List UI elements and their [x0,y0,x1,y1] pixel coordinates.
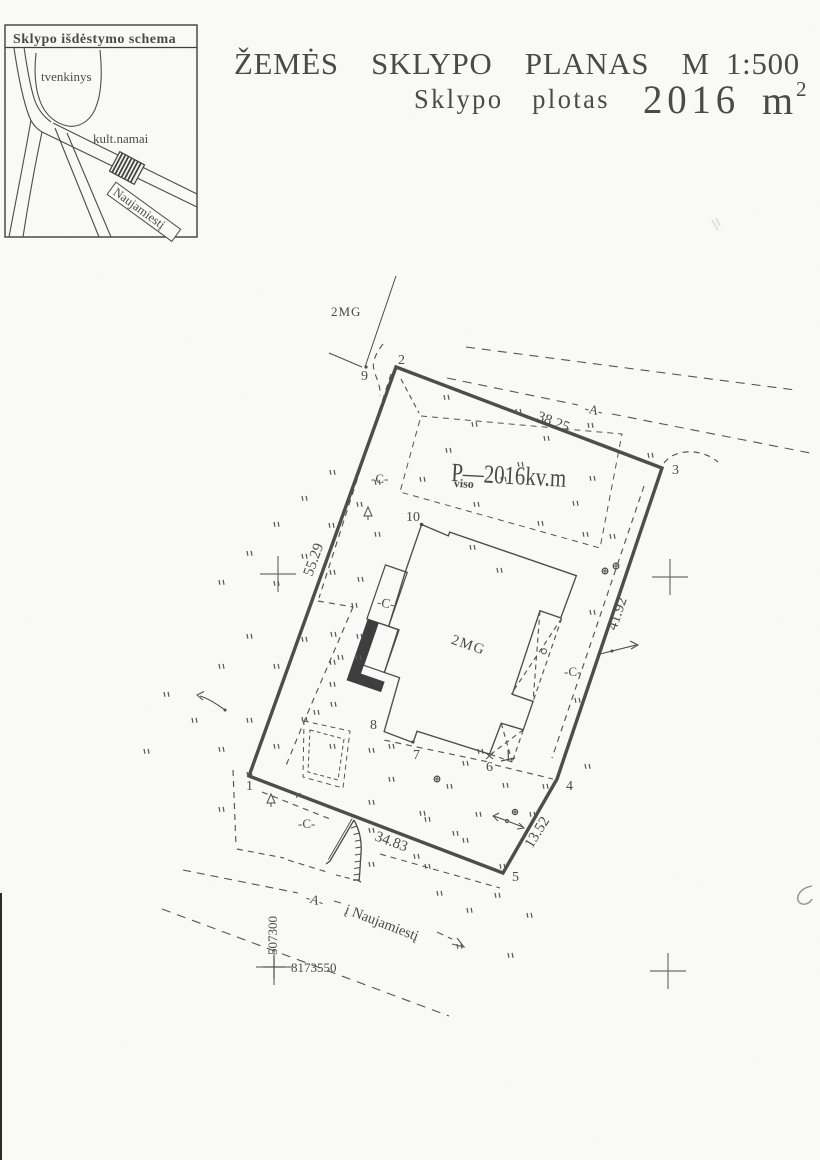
svg-text:m: m [762,78,793,123]
svg-text:5: 5 [512,870,519,885]
svg-text:7: 7 [413,748,420,763]
svg-text:-C-: -C- [564,664,581,679]
svg-text:2MG: 2MG [331,304,361,319]
svg-text:10: 10 [406,510,420,525]
svg-text:8: 8 [370,718,377,733]
svg-text:Sklypo plotas: Sklypo plotas [414,84,610,114]
svg-text:8173550: 8173550 [291,960,337,975]
svg-text:tvenkinys: tvenkinys [41,69,92,84]
svg-text:9: 9 [361,369,368,384]
svg-text:6: 6 [486,760,493,775]
svg-text:4: 4 [566,779,573,794]
svg-text:2: 2 [398,353,405,368]
svg-text:-C-: -C- [376,594,395,612]
svg-text:-C-: -C- [298,816,315,831]
svg-text:507300: 507300 [265,916,280,955]
svg-text:2: 2 [796,77,807,101]
svg-text:Sklypo išdėstymo schema: Sklypo išdėstymo schema [13,32,176,47]
svg-text:3: 3 [672,463,679,478]
svg-text:1: 1 [246,779,253,794]
svg-text:ŽEMĖS SKLYPO PLANAS M 1:500: ŽEMĖS SKLYPO PLANAS M 1:500 [234,46,800,81]
svg-text:2016: 2016 [643,77,740,122]
svg-text:kult.namai: kult.namai [93,131,149,146]
svg-text:viso: viso [453,476,474,491]
